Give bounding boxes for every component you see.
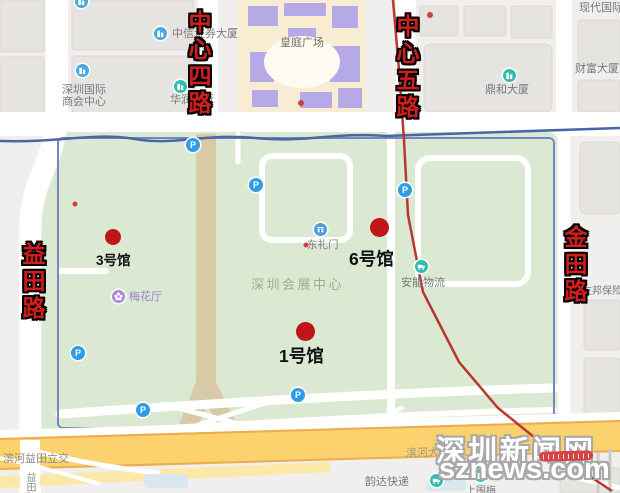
building-icon[interactable]	[154, 27, 167, 40]
poi-label-dinghe[interactable]: 鼎和大厦	[485, 84, 529, 96]
road-label-yitian: 益田路	[20, 241, 48, 322]
parking-icon[interactable]: P	[249, 178, 263, 192]
parking-letter: P	[402, 185, 408, 195]
parking-letter: P	[253, 180, 259, 190]
parking-letter: P	[140, 405, 146, 415]
poi-label-huangting[interactable]: 皇庭广场	[280, 37, 324, 49]
poi-label-caifu[interactable]: 财富大厦	[575, 63, 619, 75]
poi-label-donglimen[interactable]: 东礼门	[307, 239, 339, 251]
truck-icon[interactable]	[415, 260, 428, 273]
poi-label-anneng[interactable]: 安能物流	[401, 277, 445, 289]
huangting-plaza-block	[238, 0, 366, 113]
parking-icon[interactable]: P	[71, 346, 85, 360]
hall1-dot	[296, 322, 315, 341]
road-label-zhongxin-5: 中心五路	[394, 13, 422, 121]
building-icon[interactable]	[76, 64, 89, 77]
poi-label-binhe-yitian-interchange[interactable]: 滨河益田立交	[3, 453, 69, 465]
poi-label-convention-center[interactable]: 深圳会展中心	[251, 279, 344, 291]
gate-icon[interactable]	[314, 223, 327, 236]
parking-icon[interactable]: P	[186, 138, 200, 152]
parking-icon[interactable]: P	[398, 183, 412, 197]
road-label-jintian: 金田路	[562, 224, 590, 305]
hall6-dot	[370, 218, 389, 237]
parking-icon[interactable]: P	[136, 403, 150, 417]
poi-label-shanghui[interactable]: 深圳国际商会中心	[59, 84, 109, 108]
poi-label-xiandai[interactable]: 现代国际	[579, 2, 620, 14]
hall1-label: 1号馆	[279, 343, 324, 368]
poi-label-yunda[interactable]: 韵达快递	[365, 476, 409, 488]
building-icon[interactable]	[503, 69, 516, 82]
parking-letter: P	[295, 390, 301, 400]
hall3-dot	[105, 229, 121, 245]
poi-label-shangweimei[interactable]: 上围梅	[466, 486, 496, 493]
parking-letter: P	[75, 348, 81, 358]
flower-icon[interactable]	[112, 290, 125, 303]
parking-icon[interactable]: P	[291, 388, 305, 402]
poi-label-yitian-road-small[interactable]: 益田路	[23, 472, 35, 493]
parking-letter: P	[190, 140, 196, 150]
poi-label-meihua[interactable]: 梅花厅	[129, 291, 162, 303]
watermark-badge	[539, 450, 593, 461]
map-canvas: P P P P P P 深圳国际商会中心 中信证券大厦 华润银行 皇庭广场 鼎和…	[0, 0, 620, 493]
hall3-label: 3号馆	[96, 249, 131, 269]
road-label-zhongxin-4: 中心四路	[186, 9, 214, 117]
hall6-label: 6号馆	[349, 246, 394, 271]
